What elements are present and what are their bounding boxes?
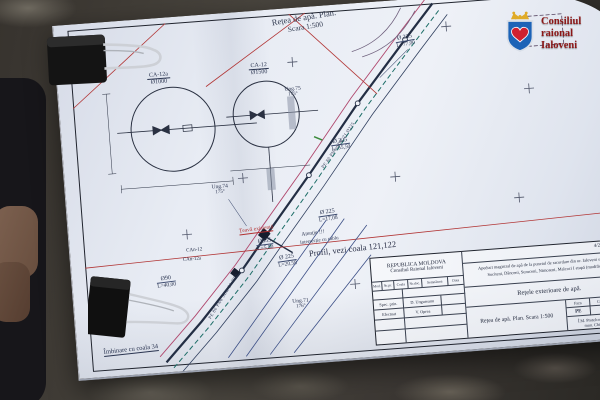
photo-scene: Rețea de apă. Plan. Scara 1:500 CA-12aØ1…	[0, 0, 600, 400]
angle-label: Ung.71176°	[292, 298, 309, 310]
road-curves	[349, 7, 418, 58]
pipe-label: Ø 225L=20,58	[277, 253, 298, 269]
title-block: REPUBLICA MOLDOVA Consiliul Raional Ialo…	[369, 238, 600, 345]
label-leader	[228, 198, 246, 227]
pipe-label: Ø355L=5,50	[256, 237, 275, 252]
angle-label: Ung.75175°	[284, 86, 301, 98]
angle-label: Ung.74175°	[211, 183, 228, 195]
marker-tick	[314, 136, 322, 141]
detail-label-ca12: CA-12Ø1500	[248, 62, 269, 76]
council-logo: Consiliul raional Ialoveni	[503, 4, 597, 64]
street-lines	[219, 217, 378, 358]
binder-clip	[88, 266, 218, 352]
hand-finger	[0, 262, 30, 322]
tb-sheet-subtitle: Rețea de apă. Plan. Scara 1:500	[466, 300, 568, 337]
council-crest-icon	[503, 11, 537, 57]
binder-clip	[46, 26, 196, 106]
council-name: Consiliul raional Ialoveni	[541, 16, 581, 51]
pipe-label: Ø 225L=17,08	[318, 208, 339, 224]
